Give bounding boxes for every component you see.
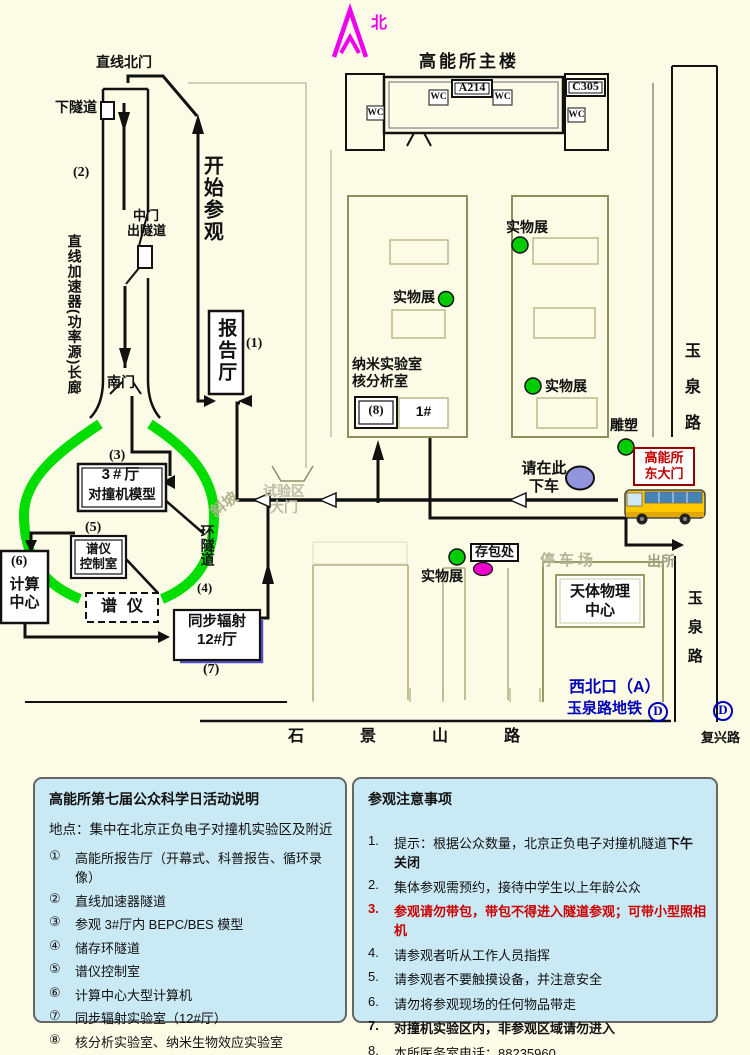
route-to-hall12: [25, 623, 160, 637]
list-item: ⑦同步辐射实验室（12#厅）: [49, 1008, 335, 1027]
main-entrance-door: [407, 133, 431, 146]
list-item: ③参观 3#厅内 BEPC/BES 模型: [49, 914, 335, 933]
arrow-down: [119, 348, 131, 368]
subway-d-label: D: [717, 703, 729, 718]
nano-lab-label-2: 核分析室: [352, 374, 408, 390]
list-item: 6.请勿将参观现场的任何物品带走: [368, 994, 706, 1013]
route-hall12-north: [260, 505, 268, 618]
activity-info-panel: 高能所第七届公众科学日活动说明 地点：集中在北京正负电子对撞机实验区及附近 ①高…: [33, 777, 347, 1023]
num-1-label: (1): [246, 336, 262, 352]
list-item-warning: 3.参观请勿带包，带包不得进入隧道参观；可带小型照相机: [368, 901, 706, 939]
start-visit-label: 开始参观: [200, 155, 222, 243]
list-item: ⑤谱仪控制室: [49, 961, 335, 980]
list-item: 8.本所医务室电话：88235960: [368, 1043, 706, 1055]
list-item: 1.提示：根据公众数量，北京正负电子对撞机隧道下午关闭: [368, 833, 706, 871]
east-gate-sign: 高能所 东大门: [633, 447, 695, 486]
route-linac-tunnel: [124, 103, 125, 368]
wc-label: WC: [367, 108, 384, 119]
inner-room: [392, 310, 445, 338]
list-item: 5.请参观者不要触摸设备，并注意安全: [368, 969, 706, 988]
wc-label: WC: [568, 110, 585, 121]
campus-map: 北 高能所主楼 A214 C305 WC WC WC WC 直线北门 下隧道 (…: [0, 0, 750, 757]
activity-location: 地点：集中在北京正负电子对撞机实验区及附近: [49, 818, 345, 838]
lower-buildings: [313, 565, 508, 700]
arrow-into-report-hall: [238, 395, 252, 407]
road-ticks: [313, 688, 540, 702]
exhibit-marker: [449, 549, 465, 565]
arrow-up: [192, 114, 204, 134]
notes-item-list: 1.提示：根据公众数量，北京正负电子对撞机隧道下午关闭 2.集体参观需预约，接待…: [354, 833, 716, 1055]
visit-notes-panel: 参观注意事项 1.提示：根据公众数量，北京正负电子对撞机隧道下午关闭 2.集体参…: [352, 777, 718, 1023]
spectro-ctrl-label-1: 谱仪: [75, 542, 122, 556]
arrow-open-left: [320, 493, 336, 507]
num-6-label: (6): [11, 554, 27, 570]
num-4-label: (4): [197, 581, 212, 596]
route-hall3-ring: [165, 500, 203, 533]
list-item: 2.集体参观需预约，接待中学生以上年龄公众: [368, 877, 706, 896]
list-item: ①高能所报告厅（开幕式、科普报告、循环录像）: [49, 848, 335, 886]
sync-hall-label-1: 同步辐射: [176, 614, 258, 630]
east-gate-label-1: 高能所: [637, 450, 691, 466]
list-item: 4.请参观者听从工作人员指挥: [368, 945, 706, 964]
route-to-computing: [31, 533, 75, 544]
computing-label-2: 中心: [1, 595, 48, 612]
subway-label: 玉泉路地铁: [567, 701, 642, 718]
report-hall-label: 报告厅: [215, 318, 236, 384]
test-gate-label-2: 大门: [270, 500, 298, 516]
south-gate-label: 南门: [107, 375, 135, 391]
astro-center-label-1: 天体物理: [556, 584, 644, 601]
subway-d-label: D: [652, 704, 664, 719]
room-a214-label: A214: [452, 81, 492, 94]
inner-room: [533, 238, 598, 264]
mid-gate-door: [138, 246, 152, 268]
exhibit-label: 实物展: [506, 220, 548, 236]
east-gate-label-2: 东大门: [637, 466, 691, 482]
hall3-label-2: 对撞机模型: [82, 487, 162, 502]
fuxing-road-label: 复兴路: [701, 731, 740, 746]
arrow-up: [372, 440, 384, 460]
wc-label: WC: [429, 92, 448, 103]
inner-room: [534, 308, 595, 338]
num-7-label: (7): [203, 662, 219, 678]
linac-corridor-label: 直线加速器(功率源)长廊: [66, 234, 82, 395]
northwest-exit-label: 西北口（A）: [569, 679, 661, 697]
bus-illustration: [625, 490, 705, 525]
computing-label-1: 计算: [1, 577, 48, 594]
exit-label: 出所: [647, 554, 675, 570]
num-5-label: (5): [85, 520, 101, 536]
mid-gate-label-2: 出隧道: [127, 224, 166, 239]
arrow-exit-right: [672, 539, 684, 551]
ring-tunnel-label: 环隧道: [199, 524, 215, 566]
mid-gate-label-1: 中门: [133, 209, 159, 224]
hall-1-label: 1#: [399, 404, 448, 420]
arrow-into-report-hall: [204, 395, 216, 407]
num-2-label: (2): [73, 165, 89, 181]
exhibit-label: 实物展: [545, 379, 587, 395]
hall3-label-1: 3#厅: [82, 467, 162, 484]
arrow-right: [158, 631, 170, 643]
arrow-up: [262, 562, 274, 584]
inner-room: [537, 398, 597, 428]
main-building-title: 高能所主楼: [419, 52, 519, 71]
sync-hall-label-2: 12#厅: [176, 632, 258, 649]
spectrometer-label: 谱仪: [86, 598, 158, 616]
list-item: 7.对撞机实验区内，非参观区域请勿进入: [368, 1018, 706, 1037]
exhibit-marker: [512, 237, 528, 253]
test-gate-label-1: 试验区: [263, 484, 305, 500]
parking-label: 停车场: [540, 553, 597, 570]
wc-label: WC: [493, 92, 512, 103]
ihep-visit-map-page: 北 高能所主楼 A214 C305 WC WC WC WC 直线北门 下隧道 (…: [0, 0, 750, 1055]
lower-grid: [313, 542, 407, 564]
nano-lab-label-1: 纳米实验室: [352, 357, 422, 373]
route-to-report-hall: [237, 403, 240, 500]
exhibit-label: 实物展: [421, 569, 463, 585]
dropoff-label-2: 下车: [518, 479, 570, 496]
yuquan-road-label-lower: 玉泉路: [685, 590, 702, 677]
activity-panel-title: 高能所第七届公众科学日活动说明: [49, 789, 345, 809]
route-north-gate: [128, 76, 197, 116]
line-north-gate-label: 直线北门: [96, 55, 152, 71]
arrow-down: [118, 112, 130, 132]
list-item: ②直线加速器隧道: [49, 891, 335, 910]
yuquan-road-label-upper: 玉泉路: [681, 342, 699, 450]
route-ctrl-spectrometer: [125, 558, 158, 593]
activity-item-list: ①高能所报告厅（开幕式、科普报告、循环录像） ②直线加速器隧道 ③参观 3#厅内…: [35, 848, 345, 1051]
shijingshan-road-label: 石景山路: [288, 728, 576, 746]
test-area-gate-symbol: [272, 466, 313, 481]
exhibit-label: 实物展: [393, 290, 435, 306]
bag-check-marker: [474, 563, 493, 576]
dropoff-marker: [566, 467, 594, 490]
spectro-ctrl-label-2: 控制室: [75, 557, 122, 571]
down-tunnel-label: 下隧道: [55, 100, 97, 116]
astro-center-label-2: 中心: [556, 603, 644, 620]
exhibit-marker: [439, 292, 454, 307]
walkway-line: [188, 83, 306, 468]
sculpture-label: 雕塑: [610, 418, 638, 434]
list-item: ⑥计算中心大型计算机: [49, 985, 335, 1004]
north-label: 北: [371, 15, 387, 33]
list-item: ④储存环隧道: [49, 938, 335, 957]
sculpture-marker: [618, 439, 634, 455]
north-arrow-icon: [334, 10, 366, 57]
num-3-label: (3): [109, 448, 125, 464]
dropoff-label-1: 请在此: [518, 461, 570, 478]
tunnel-entry-box: [101, 102, 114, 119]
exhibit-marker: [525, 378, 541, 394]
bag-check-sign: 存包处: [470, 543, 519, 562]
num-8-label: (8): [359, 403, 393, 418]
room-c305-label: C305: [566, 80, 605, 93]
list-item: ⑧核分析实验室、纳米生物效应实验室: [49, 1032, 335, 1051]
inner-room: [390, 240, 448, 264]
notes-panel-title: 参观注意事项: [368, 789, 716, 809]
